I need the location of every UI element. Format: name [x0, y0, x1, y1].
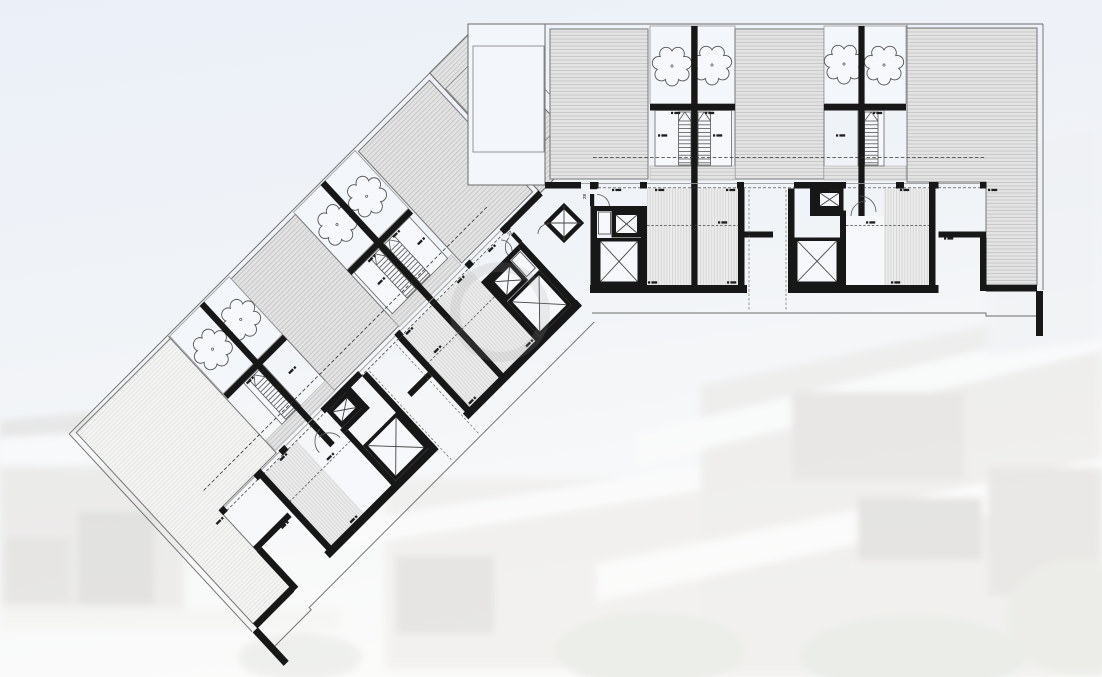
svg-text:28: 28	[582, 193, 587, 199]
